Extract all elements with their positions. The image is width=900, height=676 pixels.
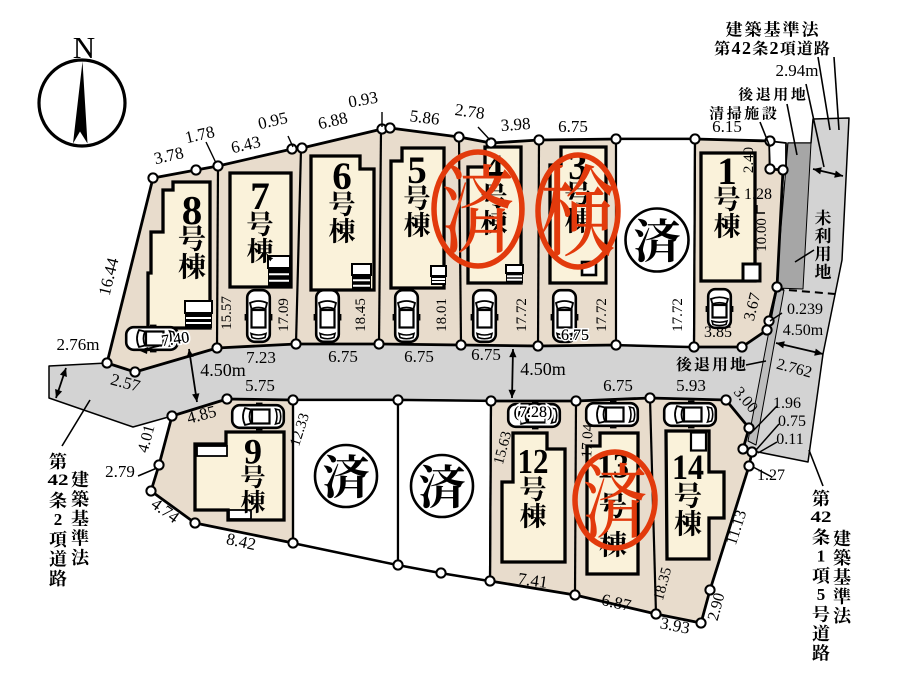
svg-text:2.94m: 2.94m [776, 61, 819, 80]
svg-text:18.01: 18.01 [434, 298, 450, 332]
svg-text:(7.28): (7.28) [514, 404, 553, 421]
svg-text:6.15: 6.15 [712, 117, 742, 136]
svg-text:17.72: 17.72 [670, 298, 686, 332]
svg-text:N: N [73, 30, 95, 65]
svg-text:6.75: 6.75 [603, 376, 633, 395]
svg-text:4: 4 [732, 38, 741, 58]
svg-text:12: 12 [518, 442, 549, 481]
svg-text:5.93: 5.93 [676, 376, 706, 395]
svg-text:10.00: 10.00 [754, 218, 770, 252]
svg-text:2.40: 2.40 [741, 147, 757, 173]
svg-text:0.75: 0.75 [778, 413, 806, 430]
svg-text:14: 14 [672, 447, 704, 487]
svg-text:0.239: 0.239 [787, 301, 823, 318]
svg-text:17.09: 17.09 [276, 298, 292, 332]
svg-text:4.50m: 4.50m [783, 322, 824, 339]
svg-text:6.75: 6.75 [404, 347, 434, 366]
svg-text:2: 2 [770, 38, 779, 58]
svg-text:3.85: 3.85 [704, 324, 732, 341]
svg-text:6.75: 6.75 [561, 327, 589, 344]
svg-text:17.04: 17.04 [579, 423, 597, 458]
svg-text:18.45: 18.45 [353, 298, 369, 332]
svg-text:17.72: 17.72 [514, 298, 530, 332]
svg-text:6.75: 6.75 [328, 347, 358, 366]
svg-text:42: 42 [811, 509, 832, 526]
svg-text:1.27: 1.27 [757, 467, 785, 484]
svg-text:1.28: 1.28 [744, 186, 772, 203]
svg-text:1: 1 [817, 546, 826, 565]
svg-text:5.86: 5.86 [409, 106, 441, 128]
svg-text:2: 2 [742, 38, 751, 58]
svg-text:2.79: 2.79 [105, 462, 135, 481]
svg-text:15.57: 15.57 [219, 296, 235, 330]
svg-text:4.50m: 4.50m [520, 359, 566, 379]
svg-text:6.75: 6.75 [471, 345, 501, 364]
svg-text:5: 5 [817, 585, 826, 604]
svg-text:2: 2 [54, 510, 63, 529]
svg-text:4.50m: 4.50m [200, 360, 246, 380]
svg-text:5.75: 5.75 [245, 376, 275, 395]
svg-text:2.76m: 2.76m [57, 335, 100, 354]
svg-text:17.72: 17.72 [594, 298, 610, 332]
svg-text:7.23: 7.23 [246, 348, 276, 367]
svg-text:42: 42 [48, 472, 69, 489]
svg-text:6.75: 6.75 [558, 117, 588, 136]
svg-text:1.96: 1.96 [773, 395, 801, 412]
svg-text:0.11: 0.11 [776, 431, 803, 448]
svg-text:3.98: 3.98 [500, 114, 531, 135]
